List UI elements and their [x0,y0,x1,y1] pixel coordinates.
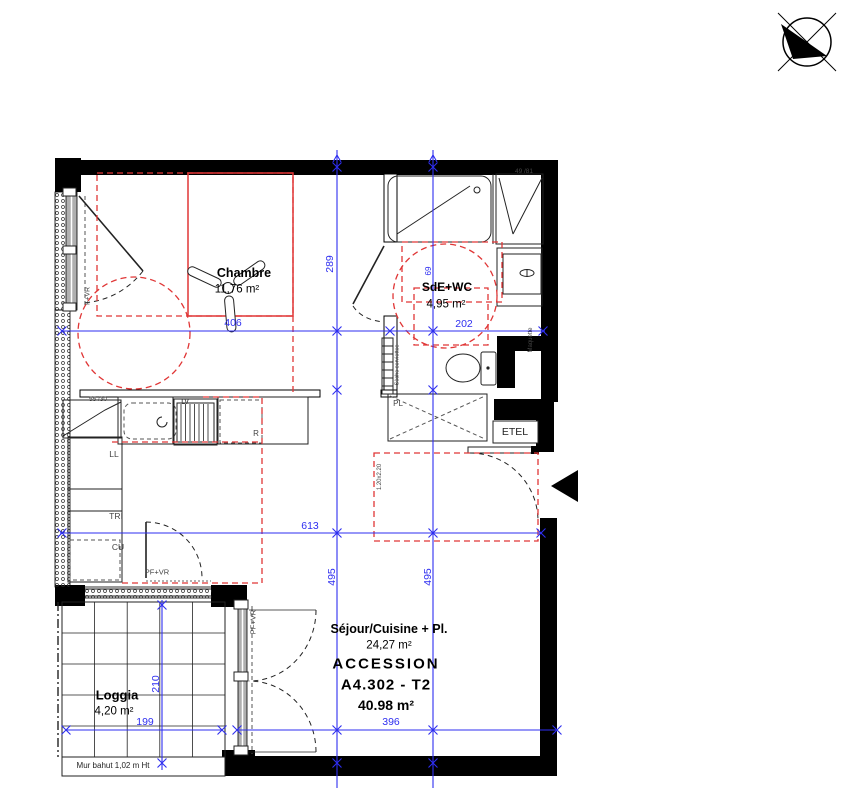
room-label-sde: SdE+WC [422,281,472,293]
dim-sde-width: 202 [455,319,473,330]
entry-door [468,446,539,521]
towel-dryer-label: Sèche serviettes [395,345,401,386]
kitchen-tall-units [63,400,122,582]
unit-total-area: 40.98 m² [358,698,414,712]
north-arrow-icon [778,13,836,71]
loggia-tiles [58,602,225,757]
left-window [63,188,143,311]
closet-label: PL [393,400,403,408]
clearance-label: 1.20x2.20 [377,464,383,490]
room-label-chambre: Chambre [217,267,271,280]
dim-sejour-bottom: 396 [382,717,400,728]
maquette-label: Maquette [528,327,534,352]
dim-chambre-width: 406 [224,318,242,329]
appliance-dishwasher: LV [181,400,188,406]
exterior-walls [55,158,558,776]
loggia-french-window [234,600,316,755]
door-label-pfvr-loggia: PF+VR [249,610,257,634]
dim-loggia-width: 199 [136,717,154,728]
appliance-fridge: R [253,430,259,438]
room-area-sde: 4,95 m² [427,299,466,311]
room-label-sejour: Séjour/Cuisine + Pl. [330,623,447,636]
room-area-loggia: 4,20 m² [95,706,134,718]
door-label-pfvr-sejour: PF+VR [145,568,169,576]
dim-niche: 69 [425,267,433,276]
window-ref-kitchen: 55 /30 [89,397,107,404]
window-ref-sde: 49 /81 [515,169,533,176]
unit-lot-number: A4.302 - T2 [341,678,431,693]
chambre-door [353,246,384,322]
floor-plan-page: Chambre 11,76 m² SdE+WC 4,95 m² Séjour/C… [0,0,844,800]
dim-chambre-height: 289 [325,255,336,273]
electrical-label: ETEL [502,427,528,438]
appliance-washer: LL [109,450,118,459]
room-label-loggia: Loggia [96,689,139,702]
room-area-sejour: 24,27 m² [366,640,411,652]
room-area-chambre: 11,76 m² [215,284,260,296]
appliance-cu: CU [112,543,124,552]
appliance-sorting: TRI [109,512,123,521]
toilet [446,352,496,385]
low-wall-note: Mur bahut 1,02 m Ht [77,762,150,770]
dim-sejour-height-right: 495 [423,568,434,586]
dim-loggia-height: 210 [151,675,162,693]
dim-sejour-height-left: 495 [327,568,338,586]
entry-arrow-icon [551,470,578,502]
sde-window-panel [496,174,543,244]
washbasin [497,248,542,306]
unit-program: ACCESSION [332,657,439,672]
kitchen-counter [118,397,308,445]
window-label-fvr: F+VR [85,287,92,305]
dim-sejour-width: 613 [301,521,319,532]
shower [388,174,493,244]
